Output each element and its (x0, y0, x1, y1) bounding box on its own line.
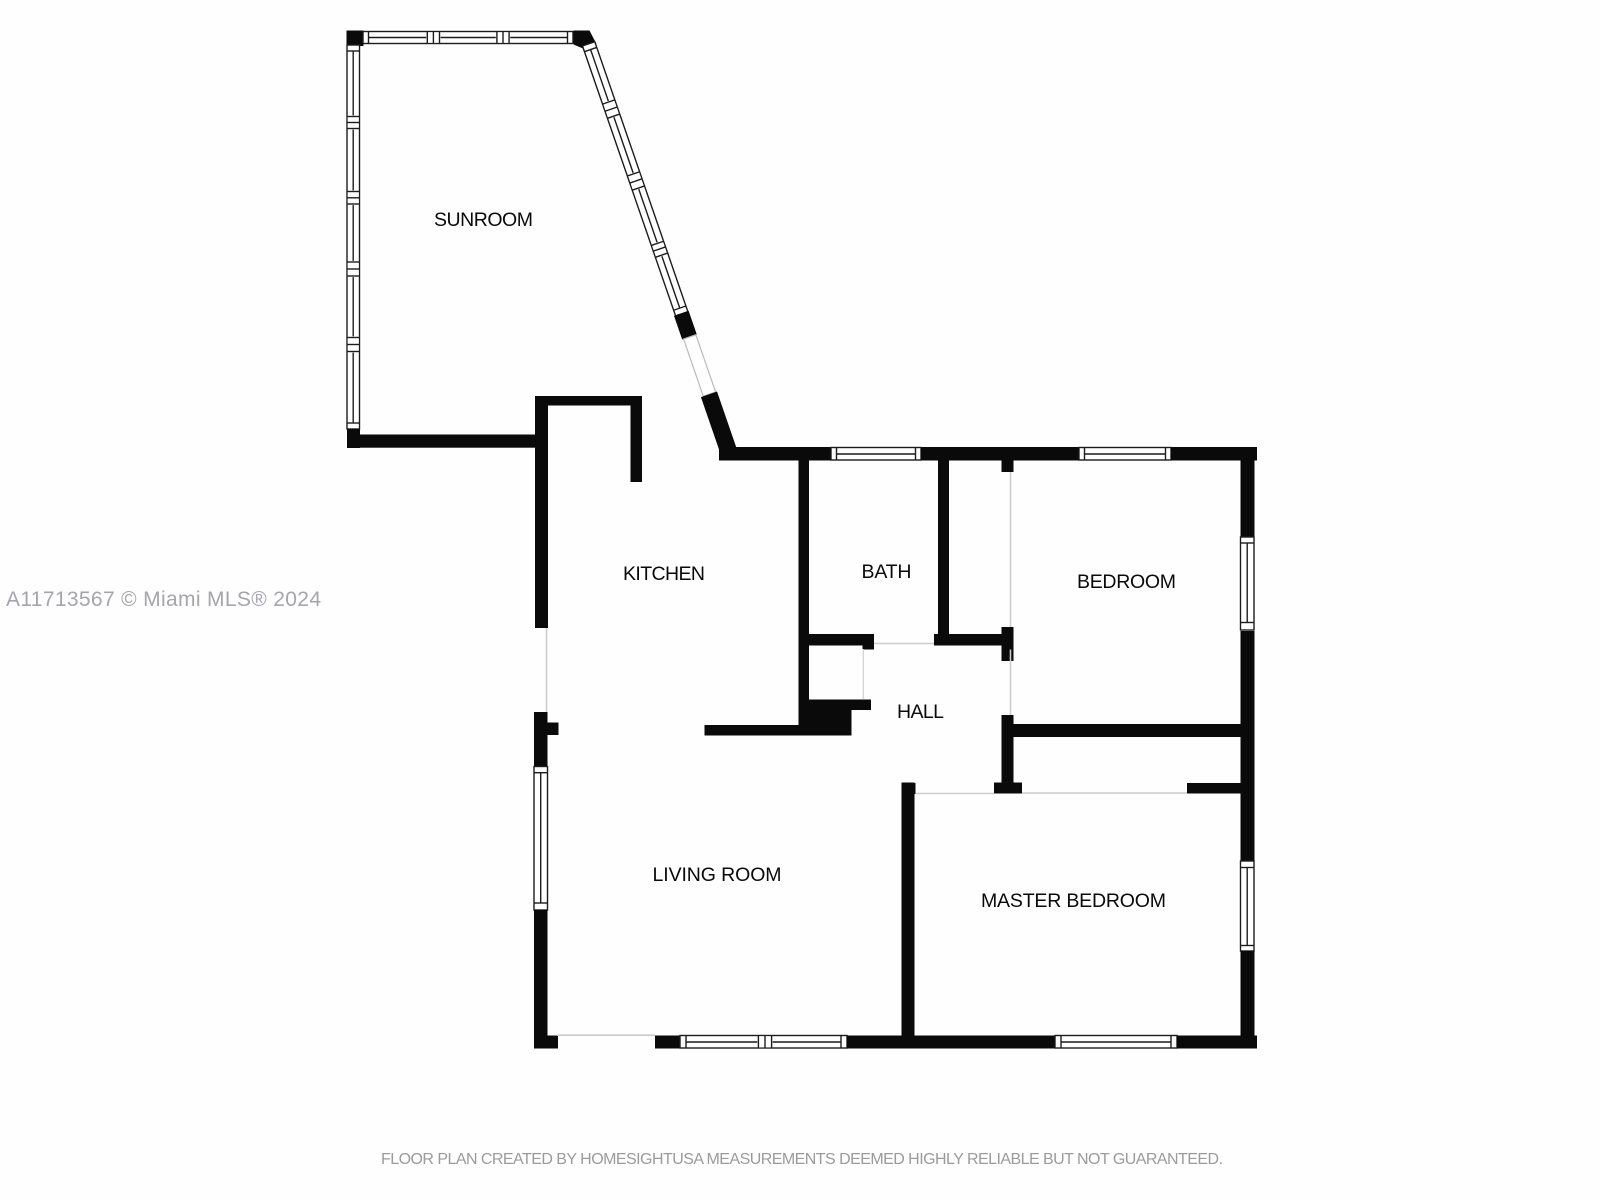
svg-text:MASTER BEDROOM: MASTER BEDROOM (981, 890, 1166, 912)
svg-text:KITCHEN: KITCHEN (623, 563, 705, 585)
svg-text:HALL: HALL (897, 701, 944, 723)
svg-text:SUNROOM: SUNROOM (434, 209, 533, 231)
svg-text:A11713567 © Miami MLS® 2024: A11713567 © Miami MLS® 2024 (6, 588, 321, 611)
svg-text:BEDROOM: BEDROOM (1077, 571, 1176, 593)
svg-text:LIVING ROOM: LIVING ROOM (653, 864, 782, 886)
svg-text:BATH: BATH (862, 561, 912, 583)
svg-text:FLOOR PLAN CREATED BY HOMESIGH: FLOOR PLAN CREATED BY HOMESIGHTUSA MEASU… (381, 1151, 1223, 1168)
